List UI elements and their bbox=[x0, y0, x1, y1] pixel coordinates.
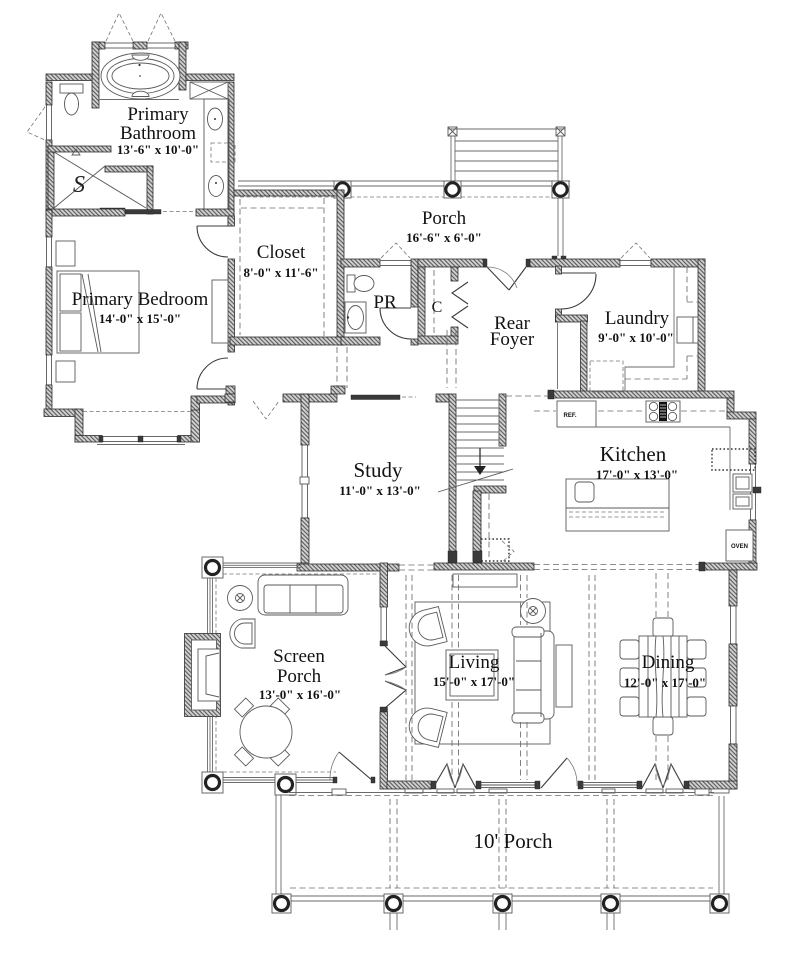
svg-text:OVEN: OVEN bbox=[731, 544, 748, 550]
svg-text:16'-6" x 6'-0": 16'-6" x 6'-0" bbox=[406, 230, 482, 245]
svg-text:Living: Living bbox=[449, 652, 500, 673]
svg-text:Primary: Primary bbox=[127, 104, 189, 125]
svg-text:14'-0" x 15'-0": 14'-0" x 15'-0" bbox=[99, 311, 181, 326]
svg-text:Kitchen: Kitchen bbox=[600, 442, 667, 466]
svg-text:S: S bbox=[73, 172, 85, 198]
svg-text:15'-0" x 17'-0": 15'-0" x 17'-0" bbox=[433, 674, 515, 689]
svg-text:Study: Study bbox=[353, 458, 403, 482]
svg-text:13'-6" x 10'-0": 13'-6" x 10'-0" bbox=[117, 142, 199, 157]
svg-text:REF.: REF. bbox=[563, 413, 576, 419]
svg-text:C: C bbox=[432, 299, 443, 316]
svg-text:13'-0" x 16'-0": 13'-0" x 16'-0" bbox=[259, 687, 341, 702]
svg-text:10' Porch: 10' Porch bbox=[473, 829, 553, 853]
svg-text:Closet: Closet bbox=[257, 242, 306, 263]
svg-text:Primary Bedroom: Primary Bedroom bbox=[72, 289, 209, 310]
svg-text:Laundry: Laundry bbox=[605, 308, 670, 329]
svg-text:17'-0" x 13'-0": 17'-0" x 13'-0" bbox=[596, 467, 678, 482]
svg-text:9'-0" x 10'-0": 9'-0" x 10'-0" bbox=[598, 330, 674, 345]
svg-text:Foyer: Foyer bbox=[490, 329, 535, 350]
svg-text:12'-0" x 17'-0": 12'-0" x 17'-0" bbox=[624, 675, 706, 690]
svg-text:Dining: Dining bbox=[642, 652, 695, 673]
svg-text:11'-0" x 13'-0": 11'-0" x 13'-0" bbox=[339, 483, 421, 498]
svg-text:PR: PR bbox=[373, 292, 397, 313]
svg-text:8'-0" x 11'-6": 8'-0" x 11'-6" bbox=[243, 265, 318, 280]
svg-text:Screen: Screen bbox=[273, 646, 325, 667]
svg-text:Bathroom: Bathroom bbox=[120, 123, 196, 144]
svg-text:Porch: Porch bbox=[277, 666, 322, 687]
svg-text:Porch: Porch bbox=[422, 208, 467, 229]
